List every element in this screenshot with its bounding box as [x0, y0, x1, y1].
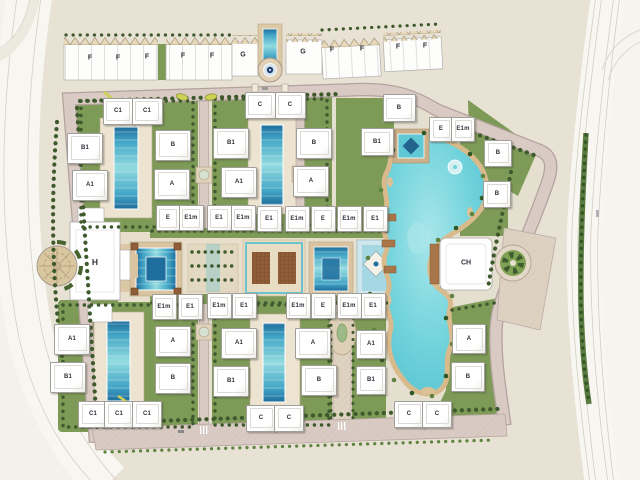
master-plan-map: FFFFFGGFFFFHCHC1C1B1BA1ACCB1BA1ABB1EE1mB…: [0, 0, 640, 480]
central-axis-gardens: [118, 228, 420, 304]
east-roundabout: [495, 245, 531, 281]
site-plan-artwork: [0, 0, 640, 480]
north-roundabout: [258, 58, 282, 82]
